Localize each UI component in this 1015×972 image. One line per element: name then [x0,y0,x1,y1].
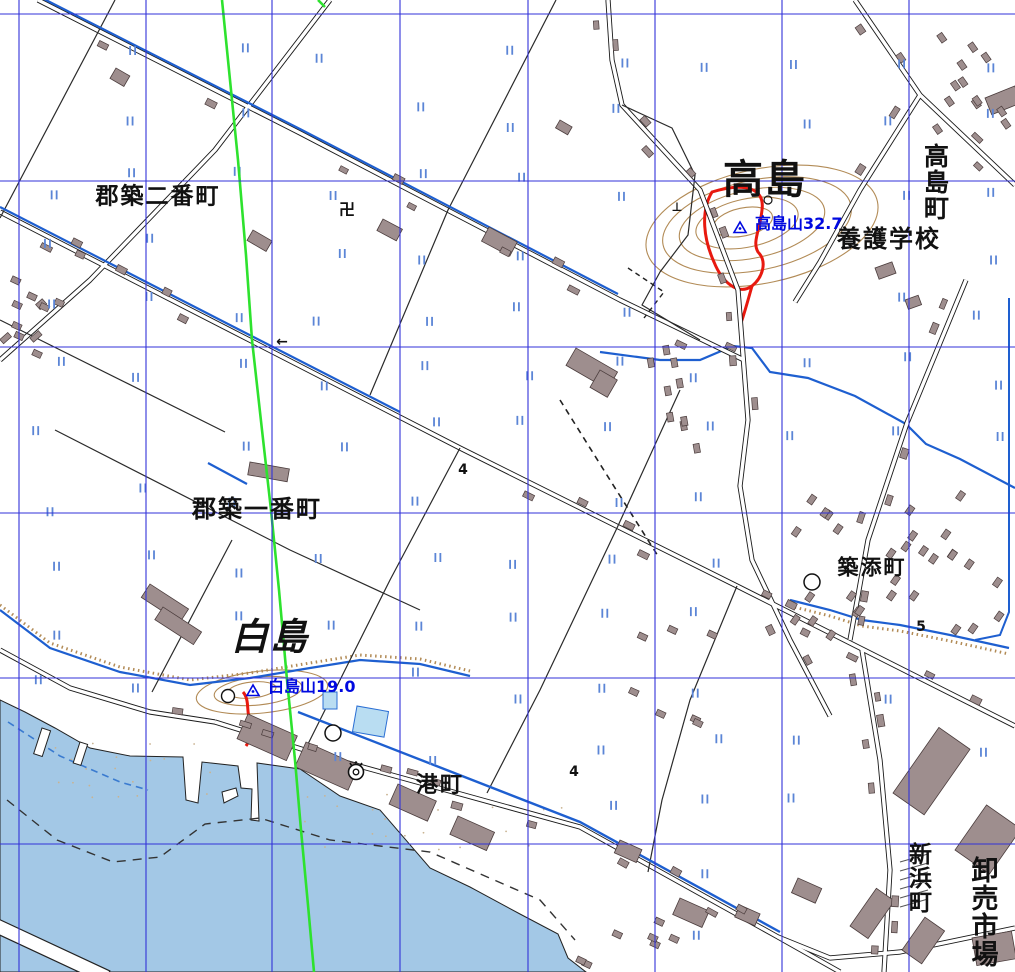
place-label-tsukizoe-cho: 築添町 [838,558,907,579]
place-label-yogo-gakko: 養護学校 [837,227,941,251]
place-label-gunchiku-ichiban-cho: 郡築一番町 [192,497,322,521]
place-label-gunchiku-niban-cho: 郡築二番町 [96,186,221,209]
spot-elevation: 5 [916,620,926,634]
post-office-icon [325,725,341,741]
place-label-oroshiuri-ichiba: 卸売市場 [969,856,996,968]
flow-arrow-icon: ← [276,335,288,349]
map-canvas[interactable]: 郡築二番町郡築一番町高島白島高島町養護学校築添町港町新浜町卸売市場高島山32.7… [0,0,1015,972]
topographic-map-drawing [0,0,1015,972]
peak-label-shirashima-yama: 白島山19.0 [268,679,355,695]
grave-mark-icon: ⊥ [672,201,683,213]
place-label-minato-machi: 港町 [416,775,464,797]
power-station-icon [349,765,364,780]
spot-elevation: 4 [458,463,468,477]
temple-icon: 卍 [339,202,355,218]
place-label-takashima: 高島 [723,160,807,200]
peak-label-takashima-yama: 高島山32.7 [755,216,842,232]
place-label-takashima-cho: 高島町 [923,143,948,221]
post-office-icon [804,574,820,590]
place-label-shirashima: 白島 [231,619,309,656]
place-label-niihama-machi: 新浜町 [906,842,929,914]
spot-elevation: 4 [569,765,579,779]
